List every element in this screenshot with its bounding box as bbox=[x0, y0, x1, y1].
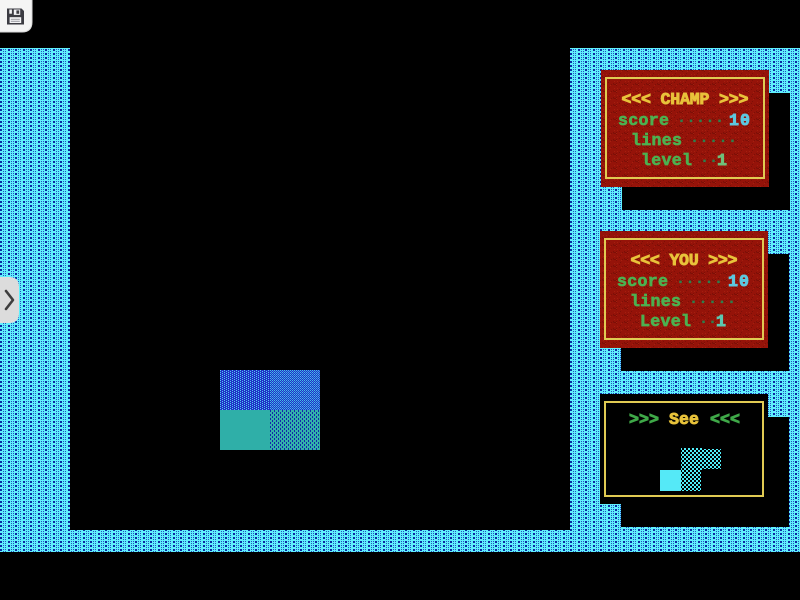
svg-text:lines: lines bbox=[631, 131, 682, 150]
svg-text:··: ·· bbox=[699, 314, 717, 331]
svg-text:·····: ····· bbox=[690, 133, 737, 150]
svg-text:See: See bbox=[669, 410, 699, 429]
svg-text:·····: ····· bbox=[676, 274, 723, 291]
svg-text:1: 1 bbox=[717, 151, 727, 170]
svg-text:score: score bbox=[618, 111, 669, 130]
svg-text:10: 10 bbox=[729, 111, 750, 130]
svg-text:score: score bbox=[617, 272, 668, 291]
svg-text:·····: ····· bbox=[689, 294, 736, 311]
svg-text:level: level bbox=[641, 151, 692, 170]
svg-text:10: 10 bbox=[728, 272, 749, 291]
svg-text:>>>: >>> bbox=[629, 410, 659, 429]
svg-text:·····: ····· bbox=[677, 113, 724, 130]
svg-text:1: 1 bbox=[716, 312, 726, 331]
svg-text:··: ·· bbox=[700, 153, 718, 170]
svg-text:Level: Level bbox=[640, 312, 691, 331]
svg-text:<<< YOU >>>: <<< YOU >>> bbox=[631, 251, 738, 270]
svg-text:<<< CHAMP >>>: <<< CHAMP >>> bbox=[622, 90, 749, 109]
svg-text:<<<: <<< bbox=[710, 410, 740, 429]
svg-text:lines: lines bbox=[630, 292, 681, 311]
